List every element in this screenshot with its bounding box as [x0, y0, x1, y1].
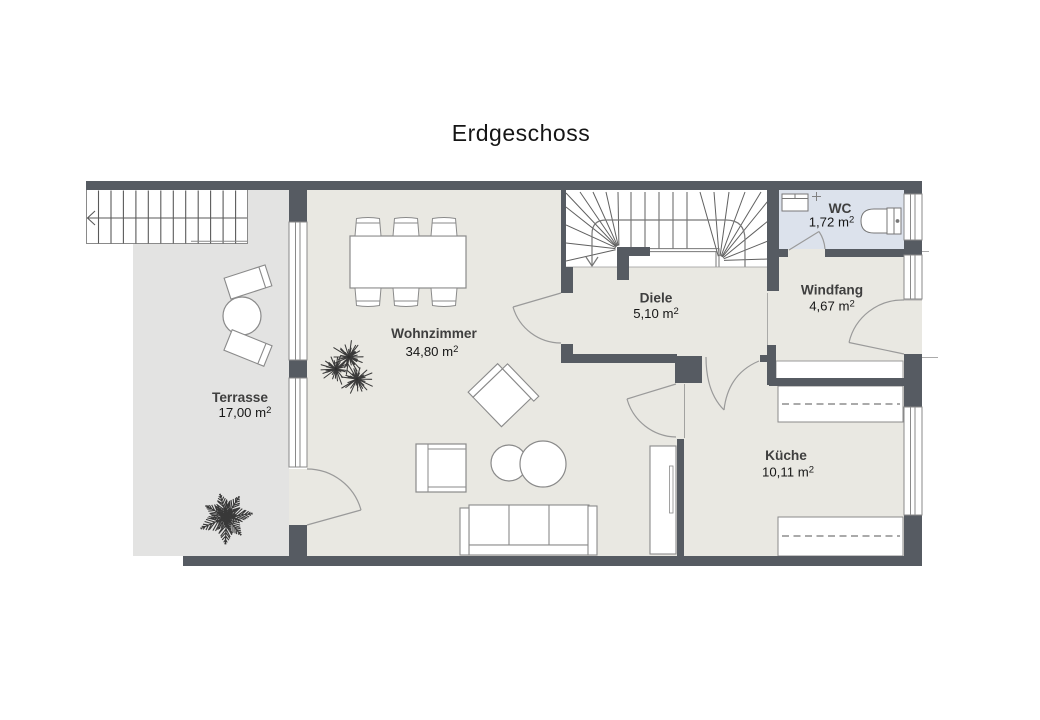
svg-text:Terrasse: Terrasse [212, 390, 268, 405]
svg-text:5,10 m2: 5,10 m2 [633, 306, 679, 321]
svg-text:Erdgeschoss: Erdgeschoss [452, 120, 590, 146]
svg-text:Windfang: Windfang [801, 283, 863, 298]
svg-text:Wohnzimmer: Wohnzimmer [391, 326, 477, 341]
svg-text:Diele: Diele [640, 291, 673, 306]
svg-text:Küche: Küche [765, 448, 807, 463]
svg-text:17,00 m2: 17,00 m2 [219, 405, 272, 420]
svg-text:4,67 m2: 4,67 m2 [809, 298, 855, 313]
svg-text:1,72 m2: 1,72 m2 [809, 214, 855, 229]
svg-text:34,80 m2: 34,80 m2 [406, 344, 459, 359]
svg-text:10,11 m2: 10,11 m2 [762, 464, 814, 479]
